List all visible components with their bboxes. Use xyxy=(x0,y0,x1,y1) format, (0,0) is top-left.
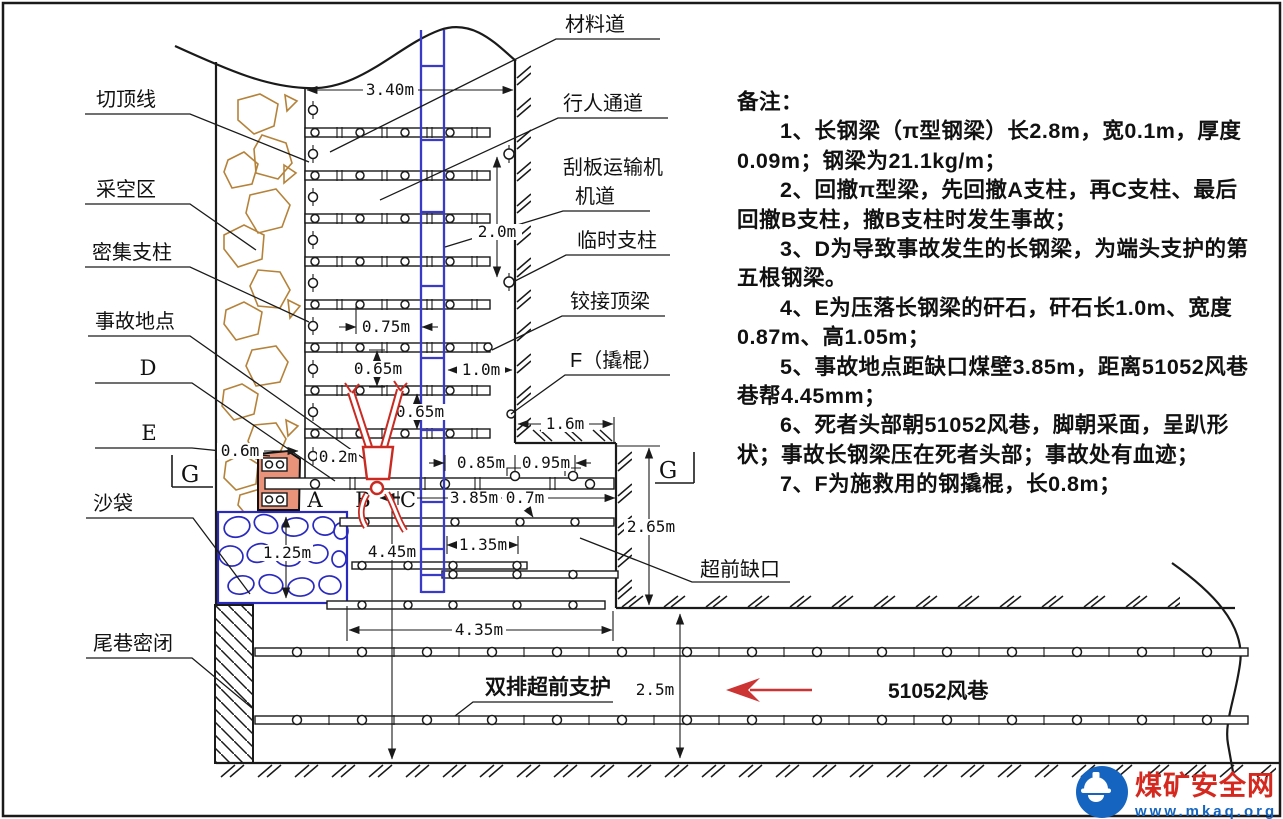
dim-0-65m-b: 0.65m xyxy=(396,402,444,421)
dim-0-2m: 0.2m xyxy=(319,447,358,466)
note-line: 3、D为导致事故发生的长钢梁，为端头支护的第 xyxy=(737,235,1283,264)
dim-0-7m: 0.7m xyxy=(506,488,545,507)
label-pedestrian-passage: 行人通道 xyxy=(563,92,643,115)
right-break-line xyxy=(1172,563,1241,772)
victim-head xyxy=(371,482,383,494)
note-line: 状；事故长钢梁压在死者头部；事故处有血迹； xyxy=(737,441,1283,470)
dim-4-35m: 4.35m xyxy=(455,620,503,639)
temporary-prop-bottom xyxy=(504,277,514,287)
dim-1-0m: 1.0m xyxy=(462,360,501,379)
dim-0-85m: 0.85m xyxy=(457,453,505,472)
tail-roadway-seal-wall xyxy=(215,605,253,763)
note-line: 巷帮4.45mm； xyxy=(737,382,1283,411)
dim-1-25m: 1.25m xyxy=(263,543,311,562)
label-advance-notch: 超前缺口 xyxy=(700,558,780,581)
label-accident-location: 事故地点 xyxy=(95,310,175,333)
label-f-crowbar: F（撬棍） xyxy=(570,349,662,372)
note-line: 1、长钢梁（π型钢梁）长2.8m，宽0.1m，厚度 xyxy=(737,117,1283,146)
dim-0-65m-a: 0.65m xyxy=(354,359,402,378)
miner-helmet-icon xyxy=(1076,766,1128,818)
dim-3-85m: 3.85m xyxy=(450,488,498,507)
dim-4-45m: 4.45m xyxy=(368,542,416,561)
dim-0-75m: 0.75m xyxy=(362,317,410,336)
prop-a-label: A xyxy=(306,488,323,512)
label-scraper-conveyor: 刮板运输机 xyxy=(563,156,663,179)
mine-accident-diagram: 切顶线 采空区 密集支柱 事故地点 沙袋 尾巷密闭 材料道 行人通道 刮板运输机… xyxy=(0,0,1283,819)
section-g-left: G xyxy=(181,462,199,488)
mkaq-watermark: 煤矿安全网 www.mkaq.org xyxy=(1076,764,1277,819)
label-material-roadway: 材料道 xyxy=(565,13,625,36)
dim-2-5m: 2.5m xyxy=(636,680,675,699)
site-name: 煤矿安全网 xyxy=(1135,764,1277,803)
dim-2-0m: 2.0m xyxy=(478,222,517,241)
note-line: 5、事故地点距缺口煤壁3.85m，距离51052风巷 xyxy=(737,353,1283,382)
dim-1-35m: 1.35m xyxy=(459,535,507,554)
dim-0-6m: 0.6m xyxy=(221,441,260,460)
note-line: 五根钢梁。 xyxy=(737,264,1283,293)
dim-1-6m: 1.6m xyxy=(546,414,585,433)
notes-block: 备注： 1、长钢梁（π型钢梁）长2.8m，宽0.1m，厚度 0.09m；钢梁为2… xyxy=(737,88,1283,500)
notes-title: 备注： xyxy=(737,88,1283,117)
advance-support-row-1 xyxy=(255,647,1248,657)
airflow-arrow xyxy=(726,678,812,702)
label-sandbags: 沙袋 xyxy=(93,492,133,515)
dim-0-95m: 0.95m xyxy=(522,453,570,472)
label-goaf: 采空区 xyxy=(96,178,156,201)
note-line: 4、E为压落长钢梁的矸石，矸石长1.0m、宽度 xyxy=(737,294,1283,323)
label-temporary-props: 临时支柱 xyxy=(577,229,657,252)
temporary-prop-top xyxy=(504,149,514,159)
site-url: www.mkaq.org xyxy=(1135,803,1277,819)
label-articulated-roof-beam: 铰接顶梁 xyxy=(570,290,650,313)
label-51052-roadway: 51052风巷 xyxy=(888,679,989,703)
section-g-right: G xyxy=(659,458,677,484)
material-roadway-track xyxy=(421,30,444,593)
label-dense-props: 密集支柱 xyxy=(92,241,172,264)
letter-e-rock: E xyxy=(141,421,156,445)
dim-3-40m: 3.40m xyxy=(366,80,414,99)
note-line: 0.87m、高1.05m； xyxy=(737,323,1283,352)
label-double-row-support: 双排超前支护 xyxy=(485,675,611,699)
note-line: 2、回撤π型梁，先回撤A支柱，再C支柱、最后 xyxy=(737,176,1283,205)
label-machine-lane: 机道 xyxy=(575,185,615,208)
dim-2-65m: 2.65m xyxy=(627,517,675,536)
roof-break-curve xyxy=(175,27,516,88)
letter-d-beam: D xyxy=(140,356,157,380)
note-line: 0.09m；钢梁为21.1kg/m； xyxy=(737,147,1283,176)
helmet-glyph xyxy=(1076,764,1116,804)
label-roof-cutting-line: 切顶线 xyxy=(96,88,156,111)
advance-support-row-2 xyxy=(255,715,1248,725)
prop-c-label: C xyxy=(400,488,416,512)
note-line: 回撤B支柱，撤B支柱时发生事故； xyxy=(737,206,1283,235)
note-line: 7、F为施救用的钢撬棍，长0.8m； xyxy=(737,470,1283,499)
label-tail-roadway-seal: 尾巷密闭 xyxy=(93,632,173,655)
note-line: 6、死者头部朝51052风巷，脚朝采面，呈趴形 xyxy=(737,411,1283,440)
